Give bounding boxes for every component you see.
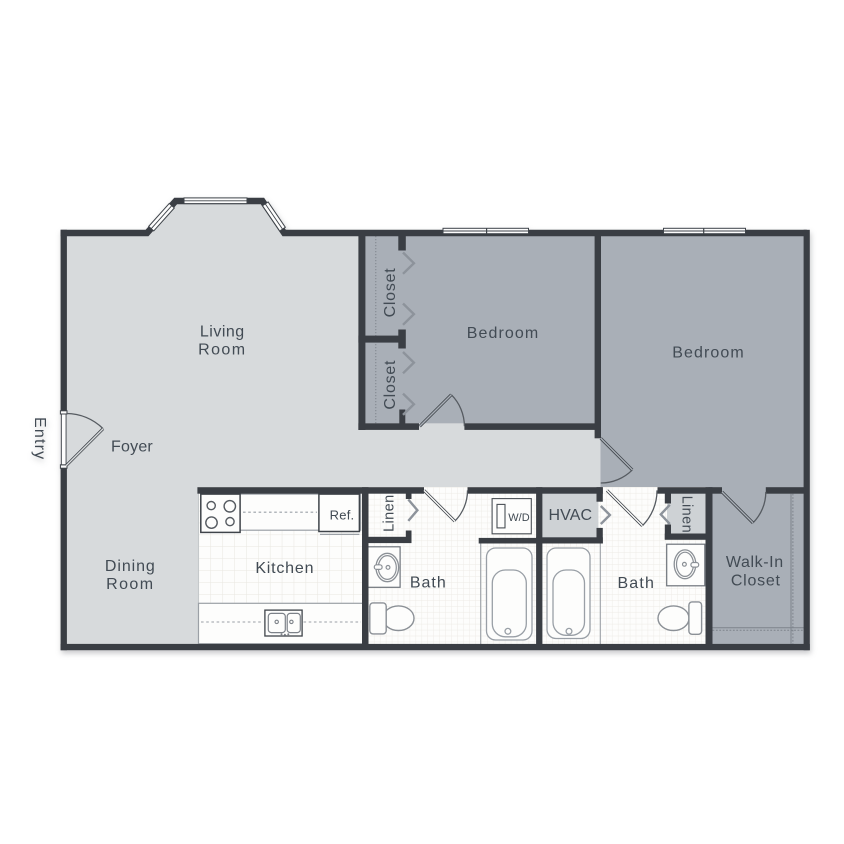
svg-text:Linen: Linen [382, 494, 398, 531]
svg-text:Kitchen: Kitchen [255, 560, 314, 577]
svg-text:Closet: Closet [382, 360, 399, 410]
svg-text:Room: Room [106, 576, 154, 593]
svg-text:Bath: Bath [617, 575, 655, 592]
svg-text:W/D: W/D [508, 512, 529, 524]
svg-text:HVAC: HVAC [548, 507, 592, 524]
svg-text:Ref.: Ref. [330, 508, 355, 523]
svg-text:Closet: Closet [731, 572, 781, 589]
svg-text:Bedroom: Bedroom [467, 325, 540, 342]
svg-text:Foyer: Foyer [111, 439, 153, 456]
svg-text:Linen: Linen [678, 496, 694, 533]
svg-text:Room: Room [198, 341, 246, 358]
svg-text:Walk-In: Walk-In [726, 554, 784, 571]
svg-text:Dining: Dining [105, 558, 156, 575]
svg-text:Living: Living [200, 324, 245, 341]
svg-text:Closet: Closet [382, 268, 399, 318]
svg-text:Bedroom: Bedroom [672, 345, 745, 362]
svg-text:Bath: Bath [410, 574, 447, 591]
svg-text:Entry: Entry [31, 417, 48, 460]
